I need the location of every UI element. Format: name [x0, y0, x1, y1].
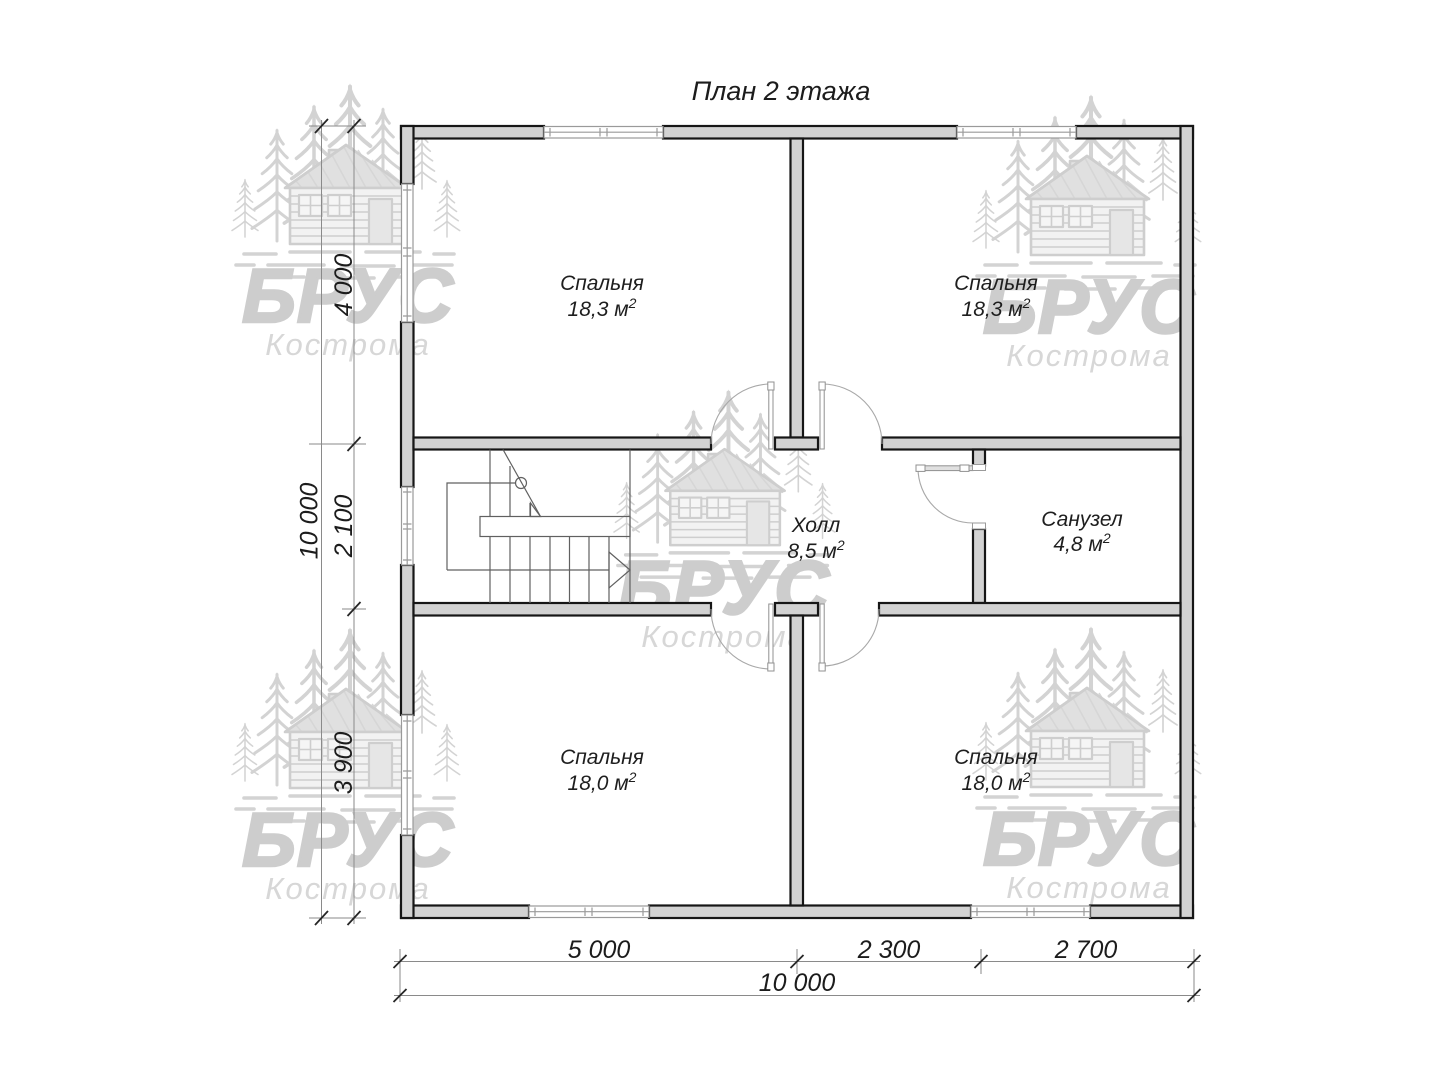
svg-text:Холл: Холл [791, 514, 841, 537]
svg-text:2 300: 2 300 [857, 936, 921, 964]
svg-text:18,3 м2: 18,3 м2 [568, 295, 637, 321]
svg-text:2 700: 2 700 [1054, 936, 1118, 964]
svg-text:5 000: 5 000 [568, 936, 631, 964]
svg-text:4,8 м2: 4,8 м2 [1053, 530, 1110, 556]
svg-text:Спальня: Спальня [560, 272, 644, 295]
svg-text:8,5 м2: 8,5 м2 [787, 537, 844, 563]
svg-text:План 2 этажа: План 2 этажа [692, 76, 871, 106]
svg-text:4 000: 4 000 [330, 254, 358, 317]
svg-text:Санузел: Санузел [1041, 508, 1123, 531]
svg-text:18,0 м2: 18,0 м2 [568, 769, 637, 795]
svg-text:3 900: 3 900 [330, 732, 358, 795]
svg-text:18,0 м2: 18,0 м2 [962, 769, 1031, 795]
svg-text:10 000: 10 000 [759, 969, 836, 997]
svg-text:10 000: 10 000 [296, 483, 324, 560]
svg-text:2 100: 2 100 [330, 495, 358, 559]
svg-text:Спальня: Спальня [954, 272, 1038, 295]
svg-text:Спальня: Спальня [560, 746, 644, 769]
svg-text:18,3 м2: 18,3 м2 [962, 295, 1031, 321]
svg-text:Спальня: Спальня [954, 746, 1038, 769]
